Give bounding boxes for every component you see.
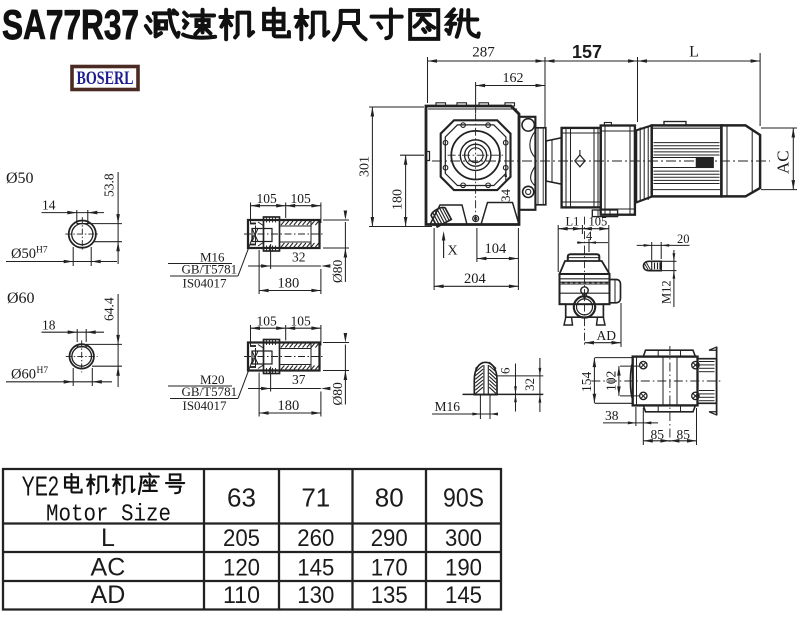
svg-text:AC: AC (774, 150, 793, 174)
svg-text:IS04017: IS04017 (183, 398, 228, 413)
svg-text:145: 145 (297, 554, 334, 581)
svg-text:162: 162 (503, 71, 524, 86)
svg-text:145: 145 (445, 582, 482, 609)
svg-text:130: 130 (297, 582, 334, 609)
svg-text:L: L (689, 44, 699, 61)
svg-text:X: X (448, 244, 458, 259)
svg-text:18: 18 (42, 318, 56, 333)
svg-text:AD: AD (91, 581, 126, 609)
svg-text:180: 180 (278, 398, 300, 414)
svg-text:102: 102 (604, 371, 619, 391)
svg-text:154: 154 (579, 372, 594, 393)
svg-text:63: 63 (227, 483, 256, 513)
svg-text:H7: H7 (36, 246, 48, 256)
svg-text:IS04017: IS04017 (183, 276, 228, 291)
svg-text:90S: 90S (443, 483, 484, 513)
svg-text:105: 105 (589, 215, 608, 229)
svg-text:Ø50: Ø50 (11, 246, 36, 262)
svg-text:SA77R37: SA77R37 (2, 1, 139, 48)
svg-text:170: 170 (371, 554, 408, 581)
svg-text:204: 204 (464, 271, 487, 287)
svg-text:M16: M16 (435, 399, 461, 414)
svg-text:105: 105 (291, 314, 312, 329)
svg-text:135: 135 (371, 582, 408, 609)
svg-text:260: 260 (297, 525, 334, 552)
svg-text:290: 290 (371, 525, 408, 552)
svg-text:M12: M12 (660, 280, 674, 304)
svg-text:104: 104 (485, 241, 508, 257)
svg-text:105: 105 (257, 191, 278, 206)
svg-text:71: 71 (301, 483, 330, 513)
svg-text:301: 301 (358, 156, 373, 177)
svg-text:53.8: 53.8 (102, 173, 117, 197)
svg-text:300: 300 (445, 525, 482, 552)
svg-text:Ø80: Ø80 (330, 382, 345, 405)
svg-text:32: 32 (292, 250, 306, 265)
svg-text:38: 38 (605, 408, 619, 423)
svg-text:AD: AD (597, 328, 617, 343)
svg-text:105: 105 (291, 191, 312, 206)
svg-text:AC: AC (91, 553, 126, 581)
svg-text:37: 37 (292, 372, 306, 387)
svg-text:190: 190 (445, 554, 482, 581)
svg-text:287: 287 (472, 45, 495, 61)
svg-text:34: 34 (498, 189, 513, 203)
svg-text:180: 180 (278, 276, 300, 292)
svg-text:Ø60: Ø60 (7, 290, 35, 307)
svg-text:Ø80: Ø80 (330, 260, 345, 283)
svg-text:64.4: 64.4 (102, 297, 117, 321)
svg-text:205: 205 (223, 525, 260, 552)
svg-text:YE2: YE2 (22, 470, 59, 501)
svg-text:20: 20 (677, 232, 690, 246)
svg-text:Ø60: Ø60 (11, 367, 36, 383)
svg-text:6: 6 (498, 367, 513, 374)
svg-text:L: L (101, 524, 115, 552)
svg-text:BOSERL: BOSERL (77, 68, 134, 89)
svg-text:14: 14 (42, 198, 56, 213)
svg-text:80: 80 (375, 483, 404, 513)
svg-text:105: 105 (257, 314, 278, 329)
svg-text:L1: L1 (566, 215, 580, 229)
svg-text:180: 180 (391, 189, 406, 210)
svg-text:H7: H7 (37, 366, 49, 376)
svg-text:110: 110 (223, 582, 260, 609)
svg-text:157: 157 (572, 42, 602, 62)
svg-text:120: 120 (223, 554, 260, 581)
svg-text:32: 32 (522, 378, 537, 391)
svg-text:Ø50: Ø50 (6, 170, 34, 187)
